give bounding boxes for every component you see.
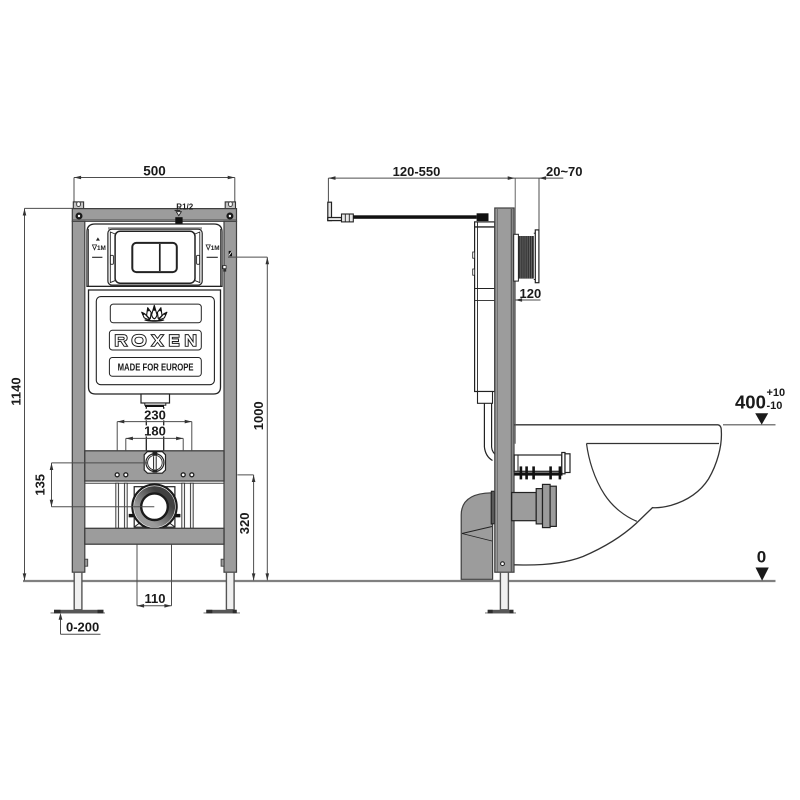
svg-text:-10: -10 xyxy=(767,400,783,412)
svg-text:MADE FOR EUROPE: MADE FOR EUROPE xyxy=(118,362,194,373)
svg-text:320: 320 xyxy=(237,513,252,535)
svg-text:1M: 1M xyxy=(211,245,220,252)
svg-text:110: 110 xyxy=(145,591,166,606)
svg-text:400: 400 xyxy=(735,391,766,412)
svg-text:1M: 1M xyxy=(97,245,106,252)
svg-text:230: 230 xyxy=(144,407,166,422)
svg-text:20~70: 20~70 xyxy=(546,164,583,179)
svg-text:0-200: 0-200 xyxy=(66,620,99,635)
svg-text:500: 500 xyxy=(143,164,166,179)
svg-text:180: 180 xyxy=(144,424,166,439)
svg-text:135: 135 xyxy=(33,474,48,496)
svg-text:1000: 1000 xyxy=(251,401,266,430)
svg-text:1140: 1140 xyxy=(8,377,23,405)
svg-text:0: 0 xyxy=(757,547,766,566)
svg-text:+10: +10 xyxy=(767,387,786,399)
svg-text:120: 120 xyxy=(520,286,542,301)
svg-text:120-550: 120-550 xyxy=(393,164,441,179)
